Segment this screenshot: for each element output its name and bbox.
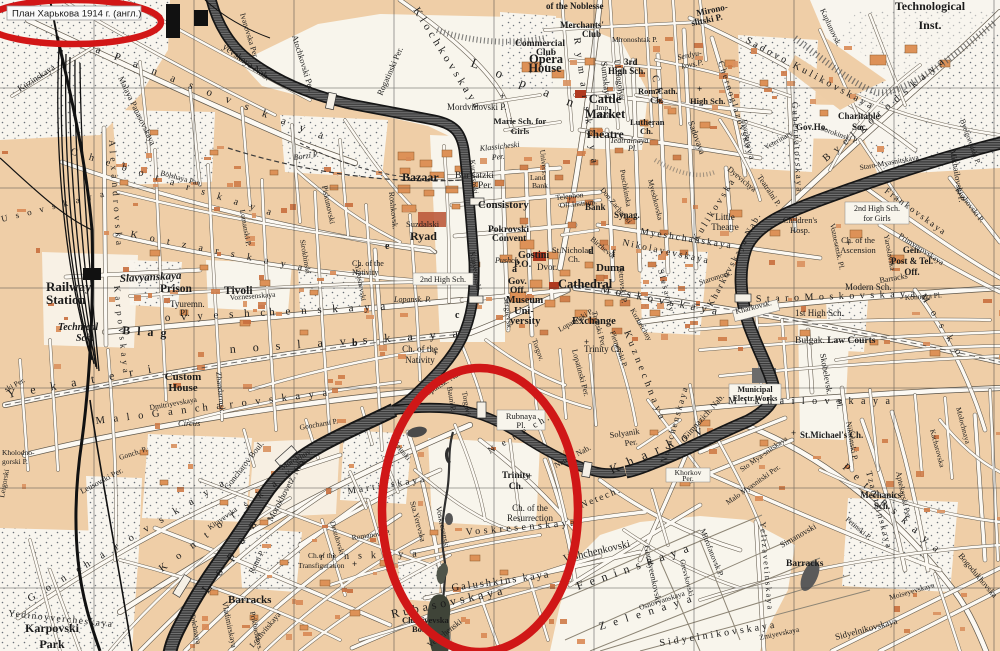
svg-text:Technological: Technological [895,0,966,13]
svg-text:Barracks: Barracks [228,594,272,606]
svg-text:Marie Sch. for: Marie Sch. for [494,116,547,126]
svg-text:+: + [500,91,505,101]
svg-text:Per.: Per. [682,474,694,483]
svg-text:+: + [527,471,532,481]
svg-text:Mordvinovski P.: Mordvinovski P. [447,102,507,112]
svg-text:Suzdalski: Suzdalski [406,219,440,229]
svg-text:+: + [433,348,438,358]
svg-text:Ch. of the: Ch. of the [512,503,548,513]
svg-text:Barracks: Barracks [786,559,824,569]
svg-text:c: c [455,310,460,321]
svg-text:Transfiguration: Transfiguration [298,561,345,570]
svg-text:Prison: Prison [160,283,193,295]
svg-text:High Sch.: High Sch. [690,96,725,106]
svg-text:1st High Sch.: 1st High Sch. [795,308,844,318]
svg-text:House: House [168,382,197,394]
svg-text:Mironoshtak P.: Mironoshtak P. [612,35,658,44]
svg-text:b: b [352,338,358,349]
svg-text:Hosp.: Hosp. [790,225,810,235]
svg-text:Sch.: Sch. [874,501,890,511]
svg-text:Bulgak. Law Courts: Bulgak. Law Courts [795,336,876,346]
svg-text:Ch.: Ch. [568,254,580,264]
svg-text:Off.: Off. [510,286,526,296]
svg-text:Children's: Children's [783,215,818,225]
svg-text:+: + [352,559,357,569]
svg-text:Pl.: Pl. [627,144,637,153]
svg-text:+: + [846,238,851,248]
svg-text:Inst.: Inst. [918,18,941,32]
svg-text:Ch.: Ch. [509,482,524,492]
svg-text:Technical: Technical [58,322,98,333]
svg-text:Mechanics': Mechanics' [860,490,904,500]
svg-text:Per.: Per. [624,436,638,448]
svg-text:Ch.of the: Ch.of the [308,551,337,560]
svg-text:House: House [528,61,562,75]
svg-text:Bank: Bank [532,181,548,190]
svg-text:Station: Station [46,292,87,307]
svg-text:M i k h a i l o v s k a y a: M i k h a i l o v s k a y a [728,396,892,407]
svg-text:Bazaar: Bazaar [402,170,439,184]
svg-text:Circus: Circus [178,418,201,428]
svg-text:Park: Park [39,637,65,651]
svg-text:Consistory: Consistory [478,199,529,211]
svg-text:Nativity: Nativity [405,355,435,365]
svg-text:План Харькова 1914 г. (англ.): План Харькова 1914 г. (англ.) [12,9,141,20]
svg-text:Convent: Convent [492,234,527,244]
svg-text:e: e [385,241,390,252]
svg-text:Girls: Girls [511,126,530,136]
svg-text:Kholodno-: Kholodno- [2,448,35,457]
svg-text:gorski P.: gorski P. [2,457,28,466]
svg-text:d: d [588,246,594,257]
svg-text:Sch.: Sch. [76,333,94,344]
svg-text:2nd High Sch.: 2nd High Sch. [854,204,900,213]
svg-text:Municipal: Municipal [737,385,773,394]
svg-text:Bank: Bank [596,111,612,120]
svg-text:a: a [512,264,517,275]
svg-text:Per.: Per. [490,152,505,162]
svg-text:+: + [584,337,589,347]
svg-text:Ryad: Ryad [410,229,437,243]
svg-text:of the Noblesse: of the Noblesse [546,1,604,11]
svg-text:2nd High Sch.: 2nd High Sch. [420,275,466,284]
svg-text:Lopansk. P.: Lopansk. P. [393,295,431,304]
svg-text:+: + [791,428,796,438]
svg-text:+: + [697,84,702,94]
svg-text:for Girls: for Girls [863,214,890,223]
svg-text:Theatre: Theatre [711,222,738,232]
svg-text:Dvor.: Dvor. [537,262,557,272]
svg-text:Club: Club [582,29,601,39]
svg-text:Ch.: Ch. [640,126,653,136]
